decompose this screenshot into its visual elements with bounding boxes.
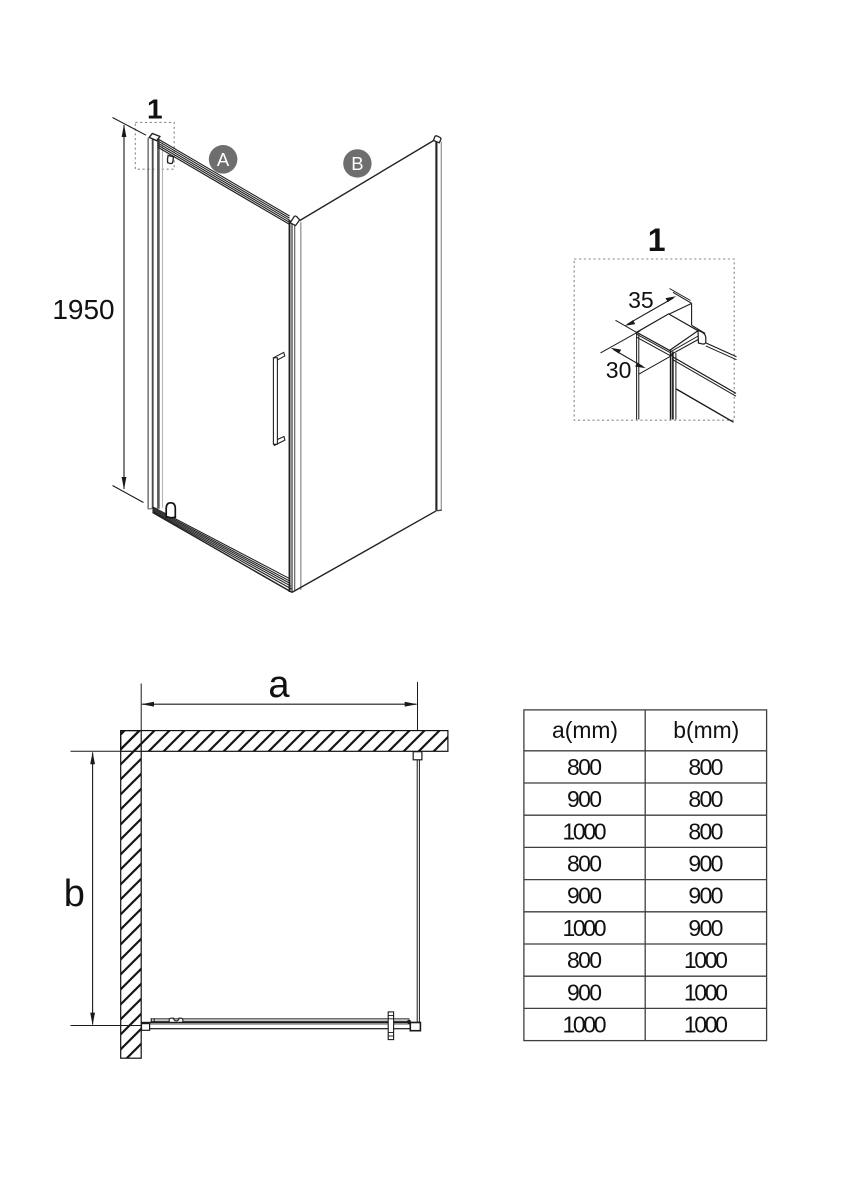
svg-text:1000: 1000 [563, 1012, 607, 1038]
svg-text:B: B [351, 153, 363, 174]
svg-text:1000: 1000 [684, 979, 728, 1005]
svg-text:800: 800 [567, 947, 602, 973]
svg-text:900: 900 [688, 915, 723, 941]
svg-text:30: 30 [606, 357, 632, 383]
svg-text:800: 800 [688, 754, 723, 780]
svg-text:A: A [217, 149, 230, 170]
svg-text:b: b [64, 873, 85, 915]
svg-text:900: 900 [567, 883, 602, 909]
svg-text:800: 800 [688, 818, 723, 844]
svg-text:900: 900 [567, 979, 602, 1005]
svg-text:1: 1 [648, 222, 666, 258]
svg-text:1950: 1950 [52, 294, 114, 325]
svg-text:900: 900 [688, 851, 723, 877]
svg-text:1000: 1000 [563, 915, 607, 941]
svg-text:800: 800 [567, 851, 602, 877]
svg-text:1000: 1000 [563, 818, 607, 844]
svg-text:a(mm): a(mm) [552, 717, 618, 743]
svg-text:800: 800 [567, 754, 602, 780]
svg-text:a: a [268, 664, 290, 706]
svg-text:1000: 1000 [684, 1012, 728, 1038]
svg-text:1000: 1000 [684, 947, 728, 973]
svg-text:35: 35 [628, 287, 654, 313]
svg-text:1: 1 [147, 94, 163, 125]
svg-text:900: 900 [688, 883, 723, 909]
svg-text:b(mm): b(mm) [673, 717, 739, 743]
svg-text:800: 800 [688, 786, 723, 812]
svg-text:900: 900 [567, 786, 602, 812]
